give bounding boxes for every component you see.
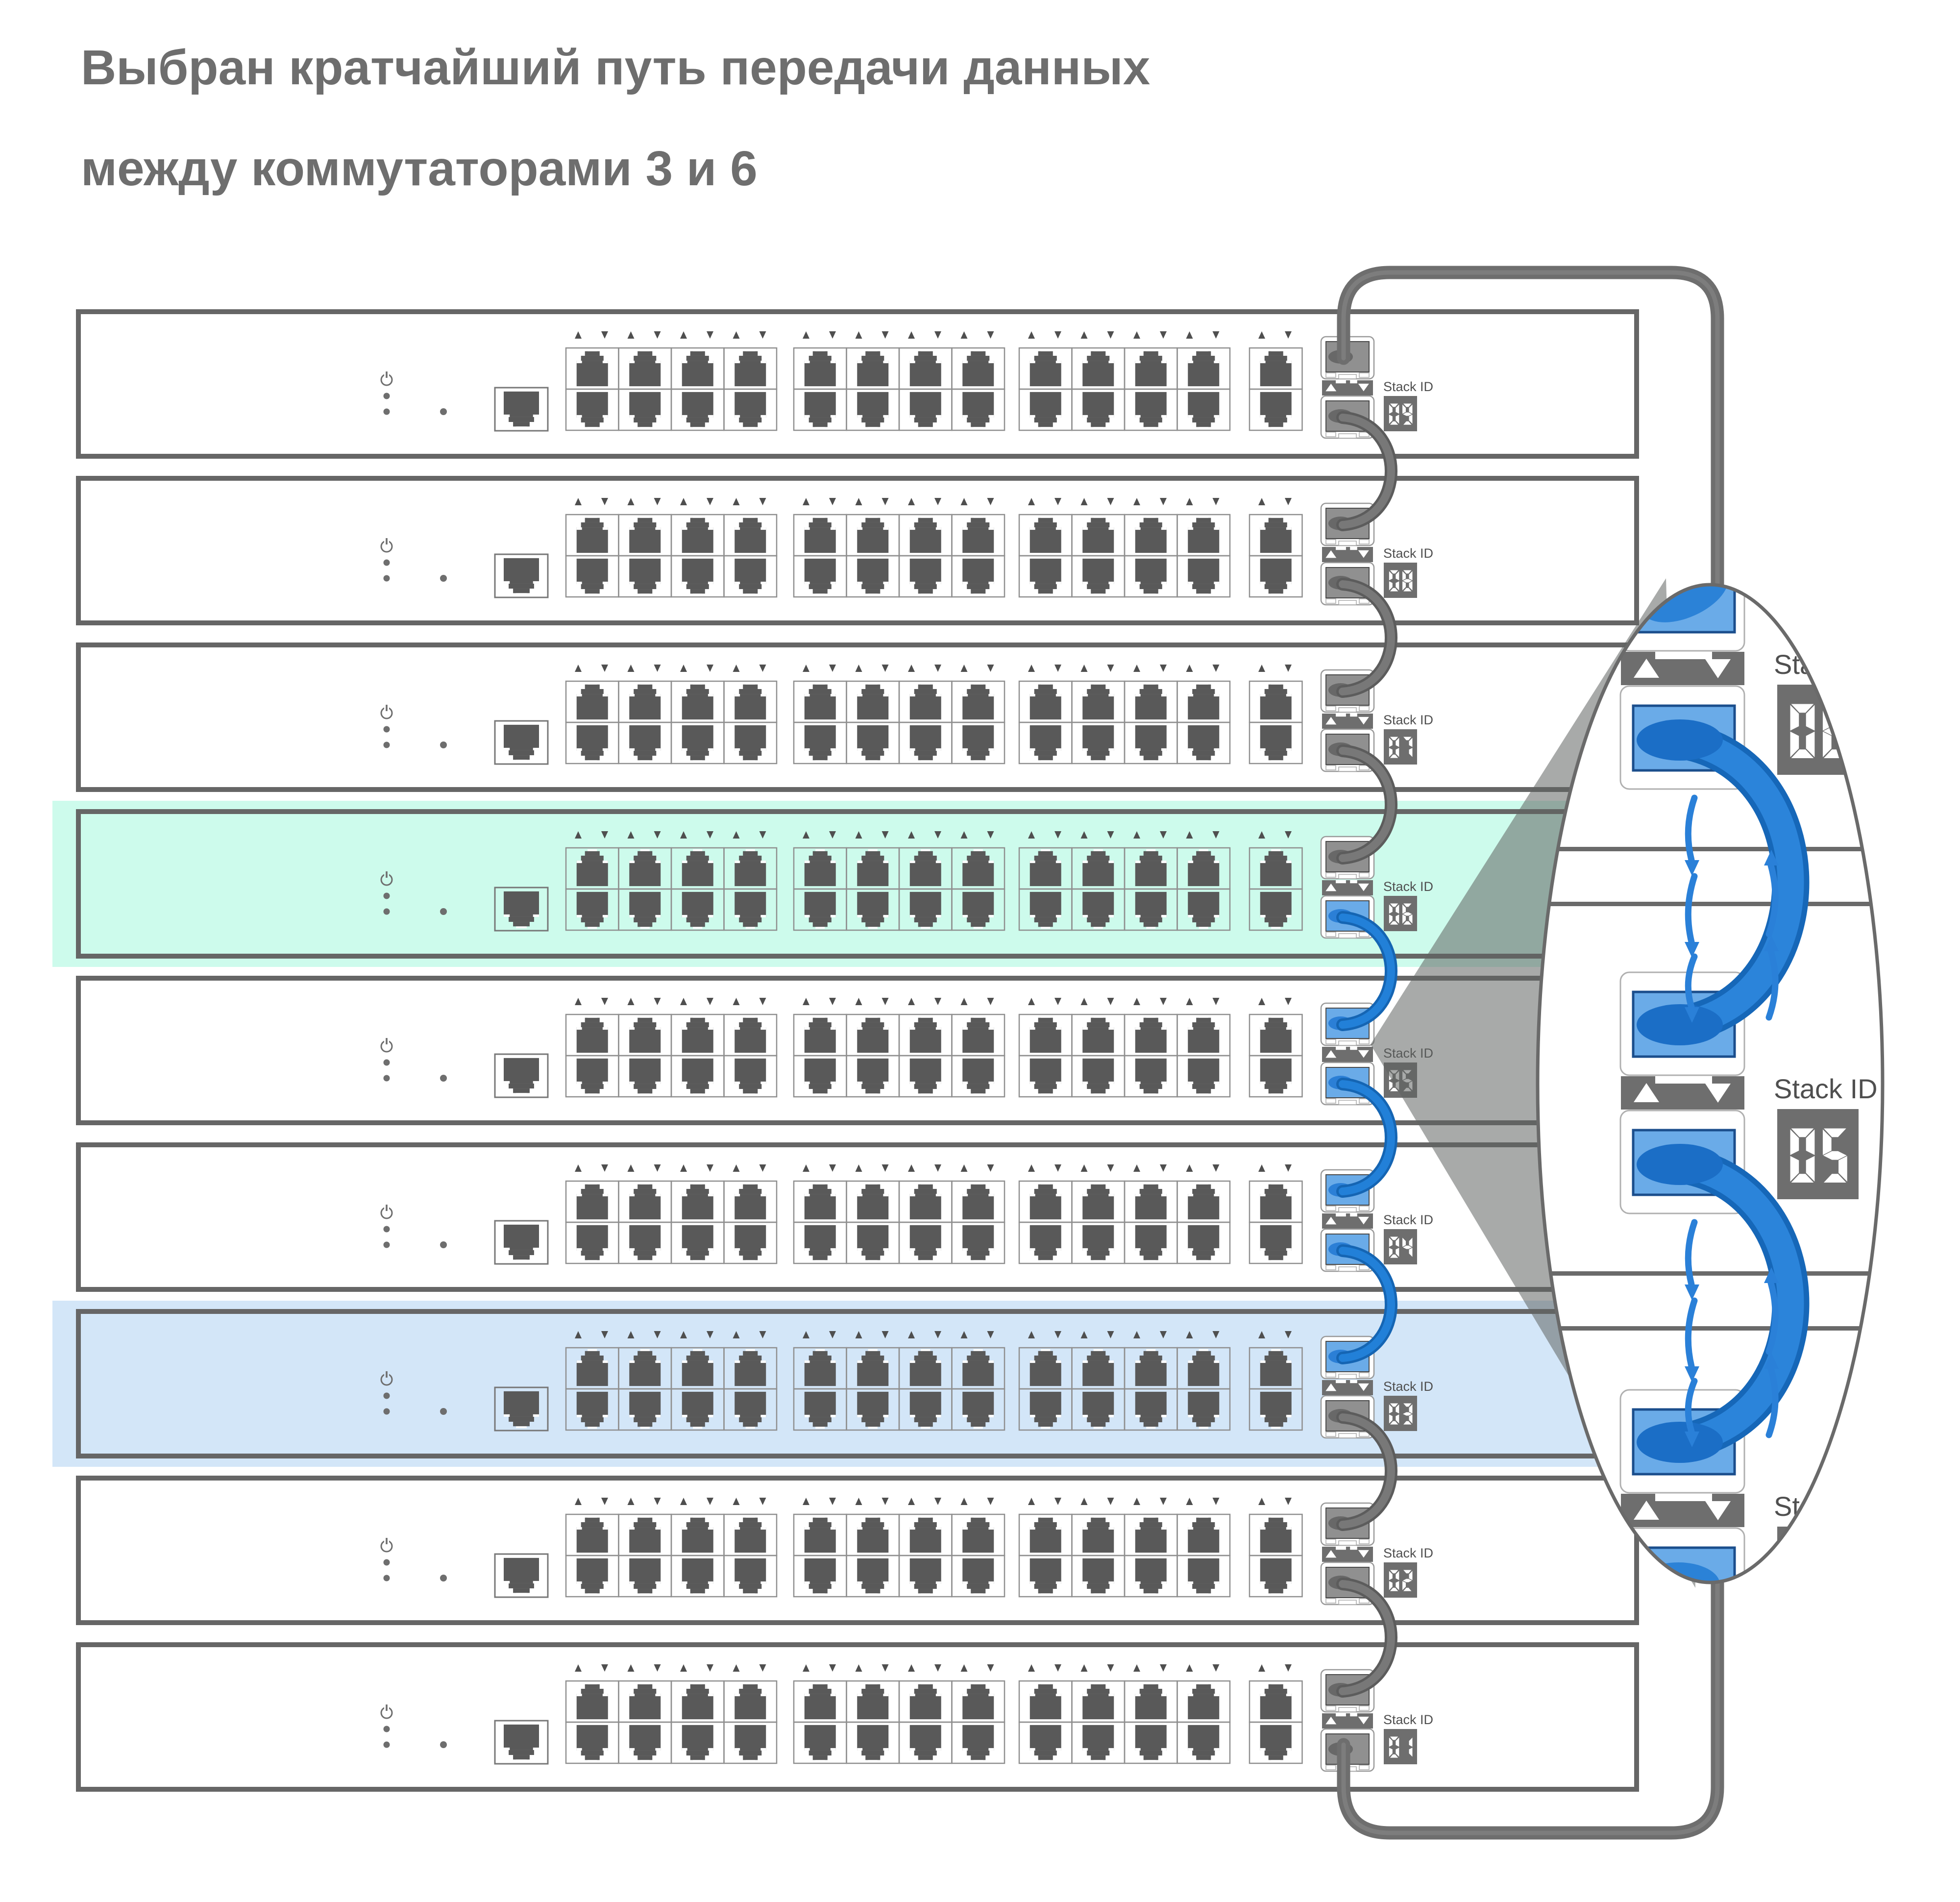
stack-id-label: Stack ID: [1383, 1379, 1433, 1394]
magnified-stack-id-label: Stack ID: [1774, 649, 1878, 680]
reset-dot: [440, 1741, 447, 1748]
stack-id-label: Stack ID: [1383, 546, 1433, 561]
led-indicator: [384, 1742, 390, 1748]
reset-dot: [440, 741, 447, 748]
magnified-chassis-edge: [1534, 902, 1888, 906]
stack-id-label: Stack ID: [1383, 1712, 1433, 1727]
led-indicator: [384, 1242, 390, 1248]
stack-id-label: Stack ID: [1383, 713, 1433, 727]
led-indicator: [384, 1559, 390, 1566]
stack-id-display-06: [1384, 896, 1417, 931]
magnified-stack-id-label: Stack ID: [1774, 1073, 1878, 1104]
page-title-line1: Выбран кратчайший путь передачи данных: [81, 40, 1150, 95]
led-indicator: [384, 726, 390, 733]
reset-dot: [440, 1241, 447, 1248]
reset-dot: [440, 1075, 447, 1082]
stack-id-label: Stack ID: [1383, 1212, 1433, 1227]
led-indicator: [384, 893, 390, 899]
led-indicator: [384, 393, 390, 399]
switch-row-04: Stack ID: [78, 1145, 1637, 1289]
stack-id-display-07: [1384, 729, 1417, 765]
magnified-stack-id-display-05: [1777, 1109, 1859, 1199]
stack-id-display-01: [1384, 1729, 1417, 1764]
magnified-chassis-edge: [1534, 1271, 1888, 1276]
reset-dot: [440, 1408, 447, 1415]
reset-dot: [440, 908, 447, 915]
stack-id-display-08: [1384, 563, 1417, 598]
reset-dot: [440, 408, 447, 415]
switch-row-09: Stack ID: [78, 312, 1637, 456]
page-title-line2: между коммутаторами 3 и 6: [81, 141, 758, 196]
led-indicator: [384, 1226, 390, 1233]
led-indicator: [384, 1393, 390, 1399]
led-indicator: [384, 742, 390, 748]
magnified-chassis-edge: [1534, 1326, 1888, 1331]
stack-id-label: Stack ID: [1383, 1546, 1433, 1560]
led-indicator: [384, 409, 390, 415]
led-indicator: [384, 1726, 390, 1732]
switch-row-01: Stack ID: [78, 1645, 1637, 1789]
stack-id-label: Stack ID: [1383, 879, 1433, 894]
magnified-stack-id-display-04: [1777, 1527, 1859, 1617]
led-indicator: [384, 1408, 390, 1415]
switch-row-02: Stack ID: [78, 1478, 1637, 1623]
led-indicator: [384, 560, 390, 566]
led-indicator: [384, 575, 390, 582]
stacking-diagram: Выбран кратчайший путь передачи данных м…: [0, 0, 1960, 1902]
stack-id-display-04: [1384, 1229, 1417, 1264]
stack-id-display-09: [1384, 396, 1417, 431]
stack-id-display-03: [1384, 1396, 1417, 1431]
reset-dot: [440, 575, 447, 582]
stack-id-label: Stack ID: [1383, 379, 1433, 394]
diagram-canvas: Выбран кратчайший путь передачи данных м…: [0, 0, 1960, 1902]
reset-dot: [440, 1575, 447, 1581]
led-indicator: [384, 1575, 390, 1581]
led-indicator: [384, 1075, 390, 1082]
switch-row-08: Stack ID: [78, 478, 1637, 623]
led-indicator: [384, 1060, 390, 1066]
magnified-stack-id-label: Stack ID: [1774, 1491, 1878, 1522]
stack-id-display-02: [1384, 1562, 1417, 1598]
switch-row-07: Stack ID: [78, 645, 1637, 790]
magnified-chassis-edge: [1534, 847, 1888, 851]
led-indicator: [384, 909, 390, 915]
